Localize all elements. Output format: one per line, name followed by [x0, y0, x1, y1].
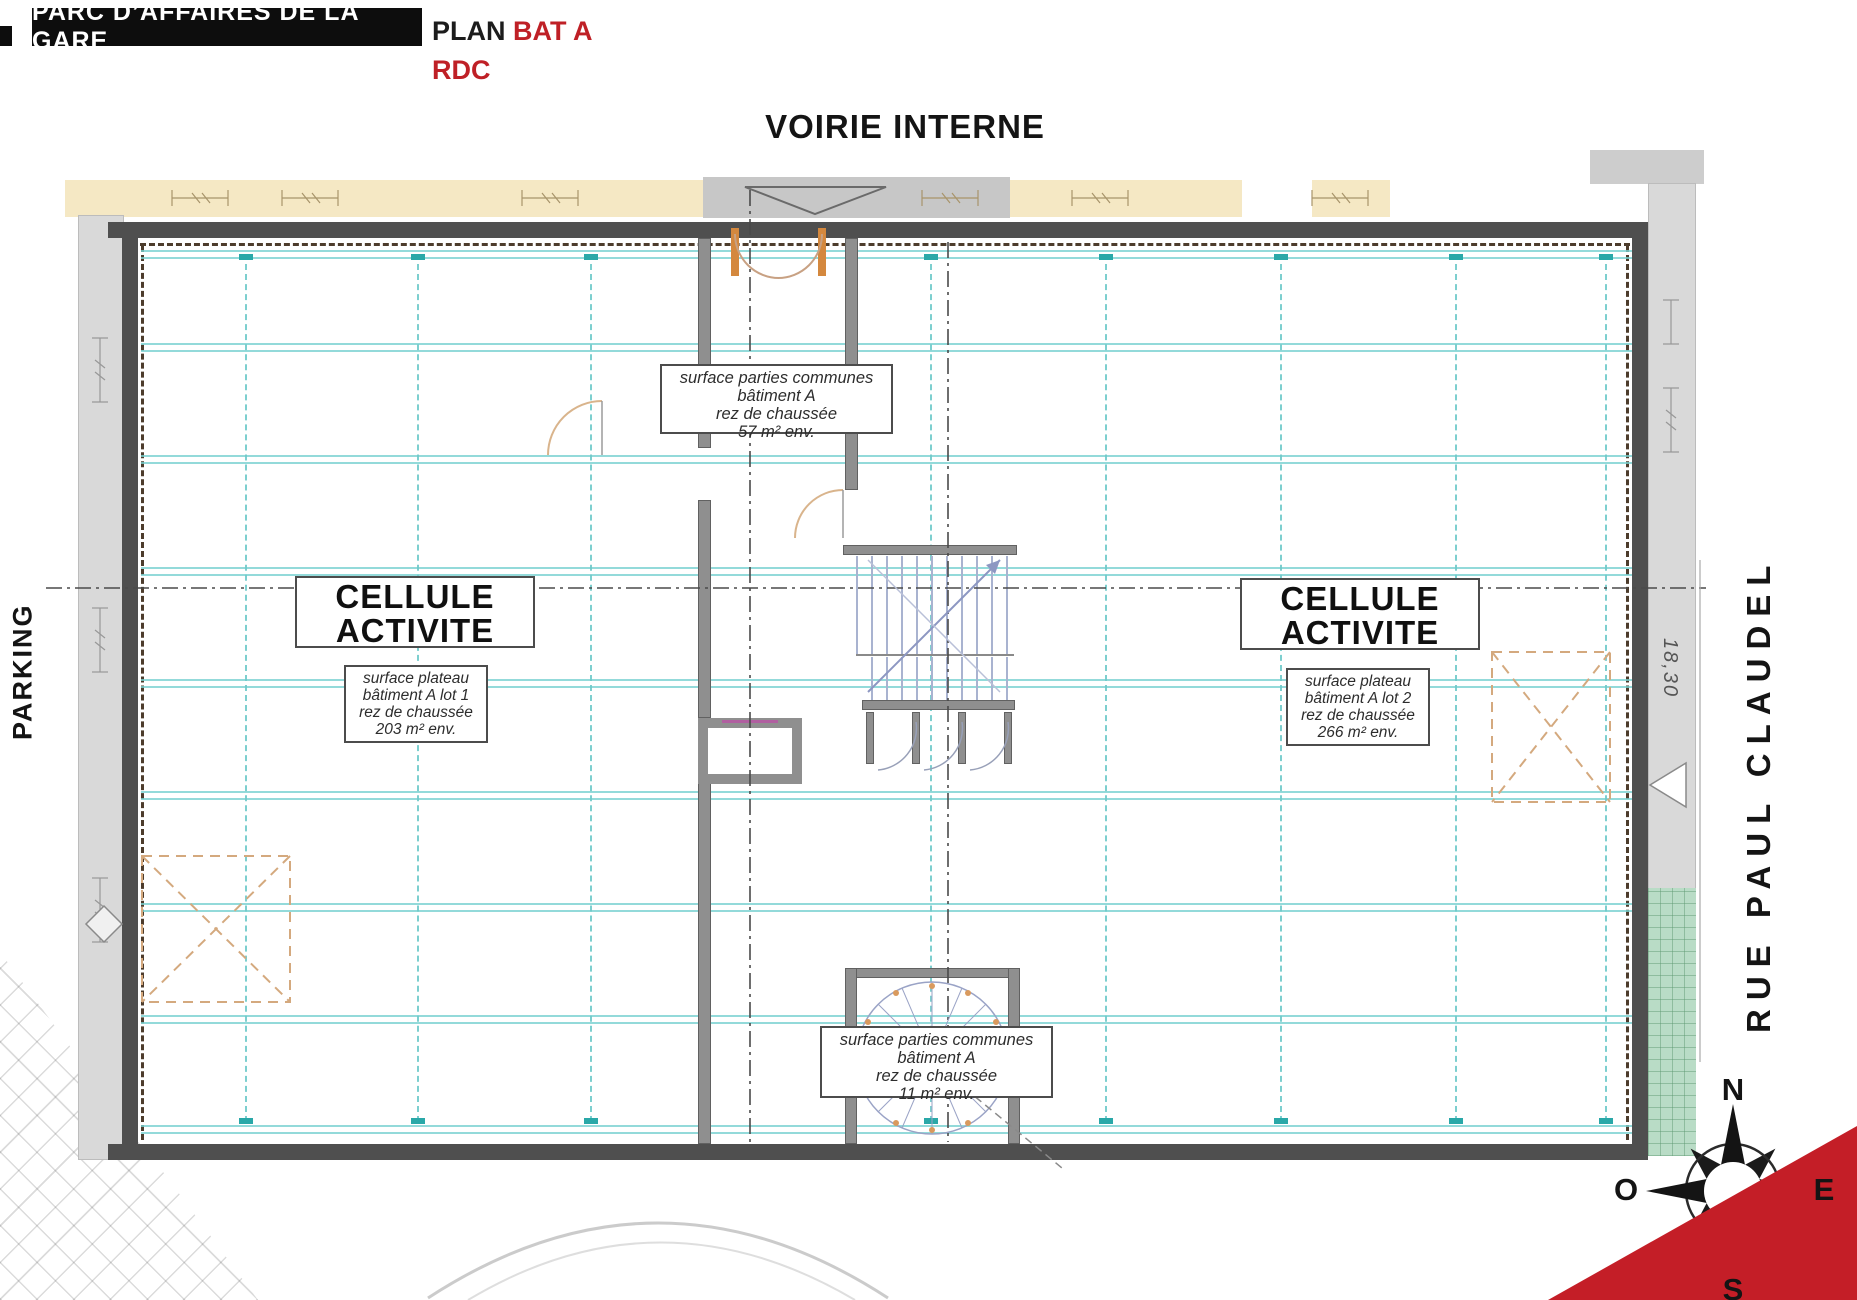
compass-label-east: E: [1804, 1172, 1844, 1208]
skylight-box-right: [1492, 652, 1610, 802]
cell-right-line1: CELLULE: [1242, 582, 1478, 616]
axis-lines: [46, 190, 1706, 1142]
surface-box-common-top: surface parties communes bâtiment A rez …: [660, 364, 893, 434]
dimension-street-width: 18,30: [1658, 638, 1681, 748]
survey-diamond-marker: [86, 906, 122, 942]
entrance-double-door: [735, 234, 822, 278]
surface-box-common-bottom: surface parties communes bâtiment A rez …: [820, 1026, 1053, 1098]
surface-line: bâtiment A: [822, 1049, 1051, 1067]
dimension-ticks-left: [92, 338, 108, 942]
driveway-curves: [428, 1223, 888, 1300]
plan-symbol-overlay: [0, 0, 1857, 1300]
stair-direction-arrow: [868, 560, 1000, 692]
surface-line: surface parties communes: [822, 1031, 1051, 1049]
skylight-box-left: [142, 856, 290, 1002]
dimension-ticks-top: [172, 190, 1368, 206]
surface-box-plateau-left: surface plateau bâtiment A lot 1 rez de …: [344, 665, 488, 743]
surface-line: 57 m² env.: [662, 423, 891, 441]
surface-line: rez de chaussée: [346, 704, 486, 721]
surface-line: 203 m² env.: [346, 721, 486, 738]
surface-box-plateau-right: surface plateau bâtiment A lot 2 rez de …: [1286, 668, 1430, 746]
cell-left-label: CELLULE ACTIVITE: [295, 576, 535, 648]
compass-label-north: N: [1713, 1072, 1753, 1108]
surface-line: surface plateau: [346, 670, 486, 687]
surface-line: bâtiment A lot 2: [1288, 690, 1428, 707]
surface-line: rez de chaussée: [822, 1067, 1051, 1085]
understair-door-swings: [878, 722, 1008, 770]
surface-line: surface parties communes: [662, 369, 891, 387]
surface-line: 11 m² env.: [822, 1085, 1051, 1103]
cell-right-line2: ACTIVITE: [1242, 616, 1478, 650]
surface-line: rez de chaussée: [1288, 707, 1428, 724]
red-corner-triangle: [1548, 1126, 1857, 1300]
interior-door: [548, 401, 602, 455]
surface-line: bâtiment A: [662, 387, 891, 405]
cell-right-label: CELLULE ACTIVITE: [1240, 578, 1480, 650]
surface-line: 266 m² env.: [1288, 724, 1428, 741]
surface-line: surface plateau: [1288, 673, 1428, 690]
surface-line: rez de chaussée: [662, 405, 891, 423]
cell-left-line2: ACTIVITE: [297, 614, 533, 648]
interior-door: [795, 490, 843, 538]
cell-left-line1: CELLULE: [297, 580, 533, 614]
compass-label-south: S: [1713, 1272, 1753, 1300]
floor-plan-page: PARC D’AFFAIRES DE LA GARE PLAN BAT A RD…: [0, 0, 1857, 1300]
compass-label-west: O: [1606, 1172, 1646, 1208]
surface-line: bâtiment A lot 1: [346, 687, 486, 704]
entrance-direction-triangle: [745, 187, 886, 214]
